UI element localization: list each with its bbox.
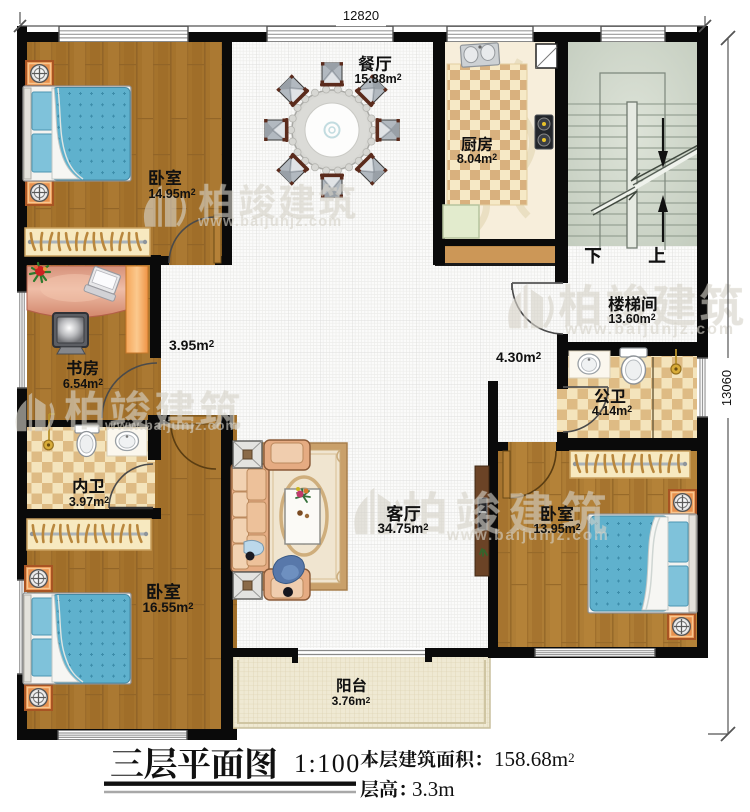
svg-text:www.baijunjz.com: www.baijunjz.com bbox=[104, 417, 239, 433]
svg-text:14.95m2: 14.95m2 bbox=[148, 187, 195, 201]
svg-text:158.68m2: 158.68m2 bbox=[494, 747, 575, 771]
svg-text:www.baijunjz.com: www.baijunjz.com bbox=[446, 527, 610, 544]
svg-text:16.55m2: 16.55m2 bbox=[142, 600, 193, 615]
svg-text:1:100: 1:100 bbox=[294, 749, 361, 778]
svg-text:13.95m2: 13.95m2 bbox=[533, 522, 580, 536]
svg-text:3.95m2: 3.95m2 bbox=[169, 337, 215, 353]
svg-text:6.54m2: 6.54m2 bbox=[63, 377, 103, 391]
svg-text:15.88m2: 15.88m2 bbox=[354, 72, 401, 86]
svg-text:34.75m2: 34.75m2 bbox=[377, 521, 428, 536]
svg-text:3.3m: 3.3m bbox=[412, 777, 455, 801]
svg-text:4.14m2: 4.14m2 bbox=[592, 404, 632, 418]
svg-text:12820: 12820 bbox=[343, 8, 379, 23]
svg-text:13060: 13060 bbox=[719, 370, 734, 406]
svg-text:13.60m2: 13.60m2 bbox=[608, 312, 655, 326]
svg-text:4.30m2: 4.30m2 bbox=[496, 349, 542, 365]
svg-text:8.04m2: 8.04m2 bbox=[457, 152, 497, 166]
svg-text:www.baijunjz.com: www.baijunjz.com bbox=[197, 214, 342, 230]
svg-text:3.76m2: 3.76m2 bbox=[332, 694, 371, 708]
svg-text:3.97m2: 3.97m2 bbox=[69, 495, 109, 509]
